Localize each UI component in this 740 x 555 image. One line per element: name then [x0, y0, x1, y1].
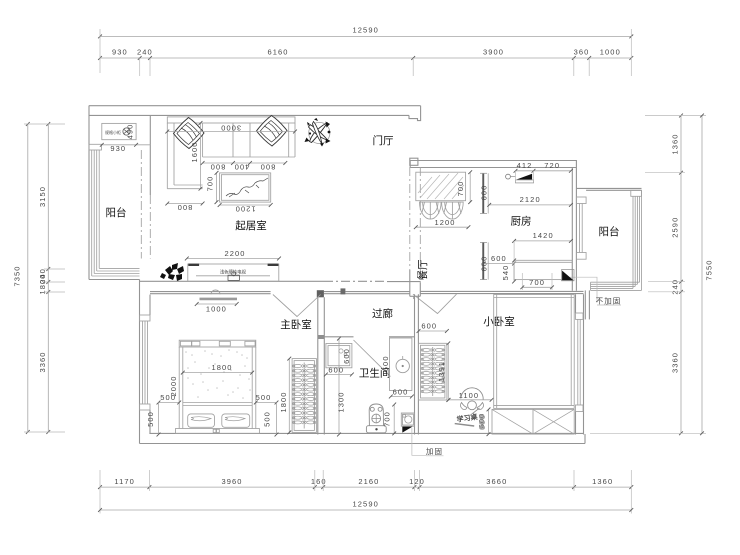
svg-text:600: 600 [491, 254, 507, 263]
svg-text:800: 800 [177, 203, 193, 212]
svg-text:阳台: 阳台 [106, 206, 127, 219]
svg-text:700: 700 [529, 278, 545, 287]
svg-text:厨房: 厨房 [511, 215, 532, 228]
svg-text:3960: 3960 [221, 477, 242, 486]
svg-text:540: 540 [501, 265, 510, 281]
svg-text:600: 600 [480, 185, 489, 201]
svg-text:800: 800 [210, 163, 226, 172]
svg-text:1360: 1360 [671, 133, 680, 154]
svg-text:不加固: 不加固 [596, 296, 622, 306]
svg-text:3360: 3360 [671, 352, 680, 373]
svg-text:2120: 2120 [520, 195, 541, 204]
svg-text:1100: 1100 [459, 391, 480, 400]
svg-text:规格小柜: 规格小柜 [105, 129, 121, 135]
svg-text:600: 600 [381, 355, 390, 371]
svg-text:1800: 1800 [38, 273, 47, 294]
svg-text:360: 360 [574, 48, 590, 57]
svg-text:160: 160 [311, 477, 327, 486]
svg-text:1000: 1000 [600, 48, 621, 57]
svg-text:7550: 7550 [705, 259, 714, 280]
svg-text:700: 700 [206, 176, 215, 192]
svg-text:500: 500 [146, 411, 155, 427]
svg-text:400: 400 [234, 163, 250, 172]
svg-text:3000: 3000 [220, 124, 241, 133]
svg-text:500: 500 [263, 411, 272, 427]
svg-text:3150: 3150 [38, 186, 47, 207]
svg-text:600: 600 [478, 414, 487, 430]
svg-text:600: 600 [421, 322, 437, 331]
svg-text:3900: 3900 [483, 48, 504, 57]
svg-text:600: 600 [393, 387, 409, 396]
svg-text:小卧室: 小卧室 [483, 315, 515, 328]
svg-text:600: 600 [328, 365, 344, 374]
svg-text:加固: 加固 [426, 446, 443, 456]
svg-text:餐厅: 餐厅 [416, 260, 429, 281]
svg-text:学习桌: 学习桌 [456, 412, 478, 424]
svg-text:3660: 3660 [486, 477, 507, 486]
svg-text:1200: 1200 [434, 218, 455, 227]
svg-text:1391: 1391 [437, 361, 446, 382]
svg-text:1800: 1800 [211, 363, 232, 372]
svg-text:3360: 3360 [38, 351, 47, 372]
svg-text:700: 700 [456, 181, 465, 197]
svg-text:2200: 2200 [224, 249, 245, 258]
svg-text:1420: 1420 [533, 231, 554, 240]
svg-text:1600: 1600 [190, 141, 199, 162]
svg-text:1000: 1000 [206, 305, 227, 314]
svg-text:1170: 1170 [114, 477, 135, 486]
svg-text:1800: 1800 [279, 391, 288, 412]
svg-text:起居室: 起居室 [235, 219, 267, 232]
svg-text:2160: 2160 [358, 477, 379, 486]
svg-text:2590: 2590 [671, 217, 680, 238]
svg-text:600: 600 [342, 348, 351, 364]
svg-text:700: 700 [382, 411, 391, 427]
svg-text:412: 412 [517, 161, 533, 170]
svg-text:500: 500 [160, 393, 176, 402]
svg-text:门厅: 门厅 [373, 134, 394, 147]
svg-text:阳台: 阳台 [599, 225, 620, 238]
svg-text:主卧室: 主卧室 [280, 318, 312, 331]
svg-text:800: 800 [260, 163, 276, 172]
svg-text:240: 240 [137, 48, 153, 57]
svg-text:12590: 12590 [353, 500, 379, 509]
svg-text:240: 240 [671, 279, 680, 295]
svg-text:490: 490 [126, 124, 135, 140]
svg-text:7350: 7350 [13, 265, 22, 286]
svg-text:930: 930 [112, 48, 128, 57]
svg-text:1200: 1200 [235, 205, 256, 214]
svg-text:12590: 12590 [353, 26, 379, 35]
svg-text:720: 720 [544, 161, 560, 170]
svg-text:1300: 1300 [337, 391, 346, 412]
svg-text:6160: 6160 [267, 48, 288, 57]
svg-text:930: 930 [110, 144, 126, 153]
svg-text:过廊: 过廊 [372, 307, 393, 320]
svg-text:500: 500 [256, 393, 272, 402]
svg-text:120: 120 [409, 477, 425, 486]
svg-text:1360: 1360 [592, 477, 613, 486]
